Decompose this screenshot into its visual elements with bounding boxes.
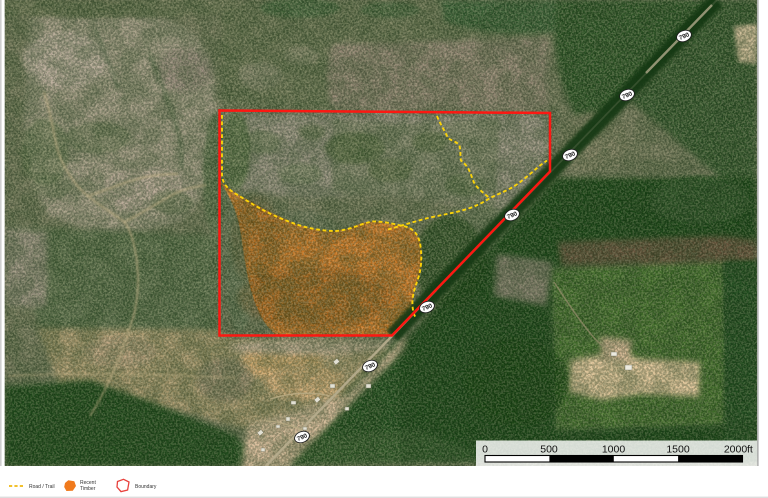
svg-text:500: 500 xyxy=(540,444,558,456)
svg-text:Boundary: Boundary xyxy=(135,484,157,490)
svg-text:1500: 1500 xyxy=(666,444,690,456)
svg-text:2000: 2000 xyxy=(724,444,748,456)
svg-text:ft: ft xyxy=(747,444,753,456)
svg-text:Recent: Recent xyxy=(80,480,96,486)
svg-text:0: 0 xyxy=(482,444,488,456)
svg-text:Road / Trail: Road / Trail xyxy=(29,484,55,490)
svg-text:Timber: Timber xyxy=(80,486,96,492)
svg-text:1000: 1000 xyxy=(602,444,626,456)
